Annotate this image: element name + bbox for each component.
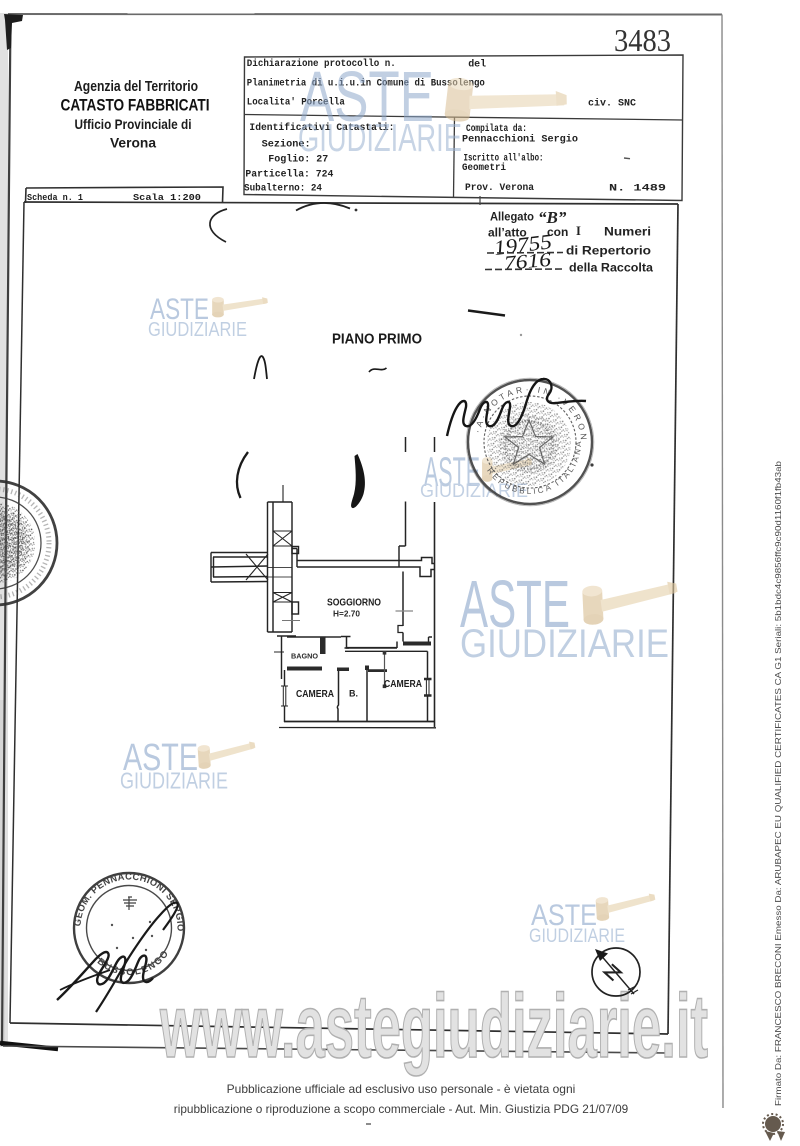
svg-text:7616: 7616: [503, 249, 552, 275]
svg-text:CAMERA: CAMERA: [384, 679, 422, 690]
svg-text:Scheda n. 1: Scheda n. 1: [27, 192, 83, 203]
svg-text:Compilata da:: Compilata da:: [466, 123, 527, 135]
svg-text:Numeri: Numeri: [604, 225, 651, 239]
svg-text:BAGNO: BAGNO: [291, 654, 319, 661]
svg-text:H=2.70: H=2.70: [333, 610, 361, 619]
svg-text:civ. SNC: civ. SNC: [588, 98, 636, 110]
svg-text:GIUDIZIARIE: GIUDIZIARIE: [148, 318, 247, 341]
svg-text:SOGGIORNO: SOGGIORNO: [327, 598, 381, 609]
svg-text:GIUDIZIARIE: GIUDIZIARIE: [529, 925, 625, 947]
svg-text:N. 1489: N. 1489: [609, 184, 666, 195]
svg-text:Firmato Da: FRANCESCO BRECONI: Firmato Da: FRANCESCO BRECONI Emesso Da:…: [774, 460, 783, 1106]
svg-text:Verona: Verona: [110, 135, 156, 151]
svg-text:Agenzia del Territorio: Agenzia del Territorio: [74, 79, 198, 95]
svg-text:3483: 3483: [614, 22, 671, 58]
svg-text:di Repertorio: di Repertorio: [566, 244, 651, 258]
svg-text:Prov. Verona: Prov. Verona: [465, 183, 534, 194]
svg-text:B.: B.: [349, 689, 358, 699]
svg-text:CAMERA: CAMERA: [296, 689, 334, 700]
svg-text:Pubblicazione ufficiale ad esc: Pubblicazione ufficiale ad esclusivo uso…: [227, 1082, 576, 1096]
svg-text:Allegato: Allegato: [490, 210, 534, 224]
svg-text:della Raccolta: della Raccolta: [569, 261, 653, 275]
svg-text:ripubblicazione o riproduzione: ripubblicazione o riproduzione a scopo c…: [174, 1102, 628, 1116]
svg-text:del: del: [468, 59, 486, 71]
svg-text:Particella: 724: Particella: 724: [245, 169, 333, 181]
svg-text:GIUDIZIARIE: GIUDIZIARIE: [460, 622, 669, 666]
svg-text:PIANO PRIMO: PIANO PRIMO: [332, 332, 422, 348]
svg-text:GIUDIZIARIE: GIUDIZIARIE: [298, 117, 462, 160]
svg-text:Subalterno: 24: Subalterno: 24: [244, 183, 322, 195]
svg-text:CATASTO FABBRICATI: CATASTO FABBRICATI: [61, 97, 210, 115]
svg-text:I: I: [576, 224, 581, 238]
svg-text:Scala 1:200: Scala 1:200: [133, 192, 201, 203]
svg-text:Pennacchioni Sergio: Pennacchioni Sergio: [462, 134, 578, 146]
svg-text:Ufficio Provinciale di: Ufficio Provinciale di: [75, 116, 192, 132]
svg-text:GIUDIZIARIE: GIUDIZIARIE: [120, 768, 228, 794]
svg-text:Geometri: Geometri: [462, 162, 506, 174]
svg-text:www.astegiudiziarie.it: www.astegiudiziarie.it: [159, 977, 708, 1077]
